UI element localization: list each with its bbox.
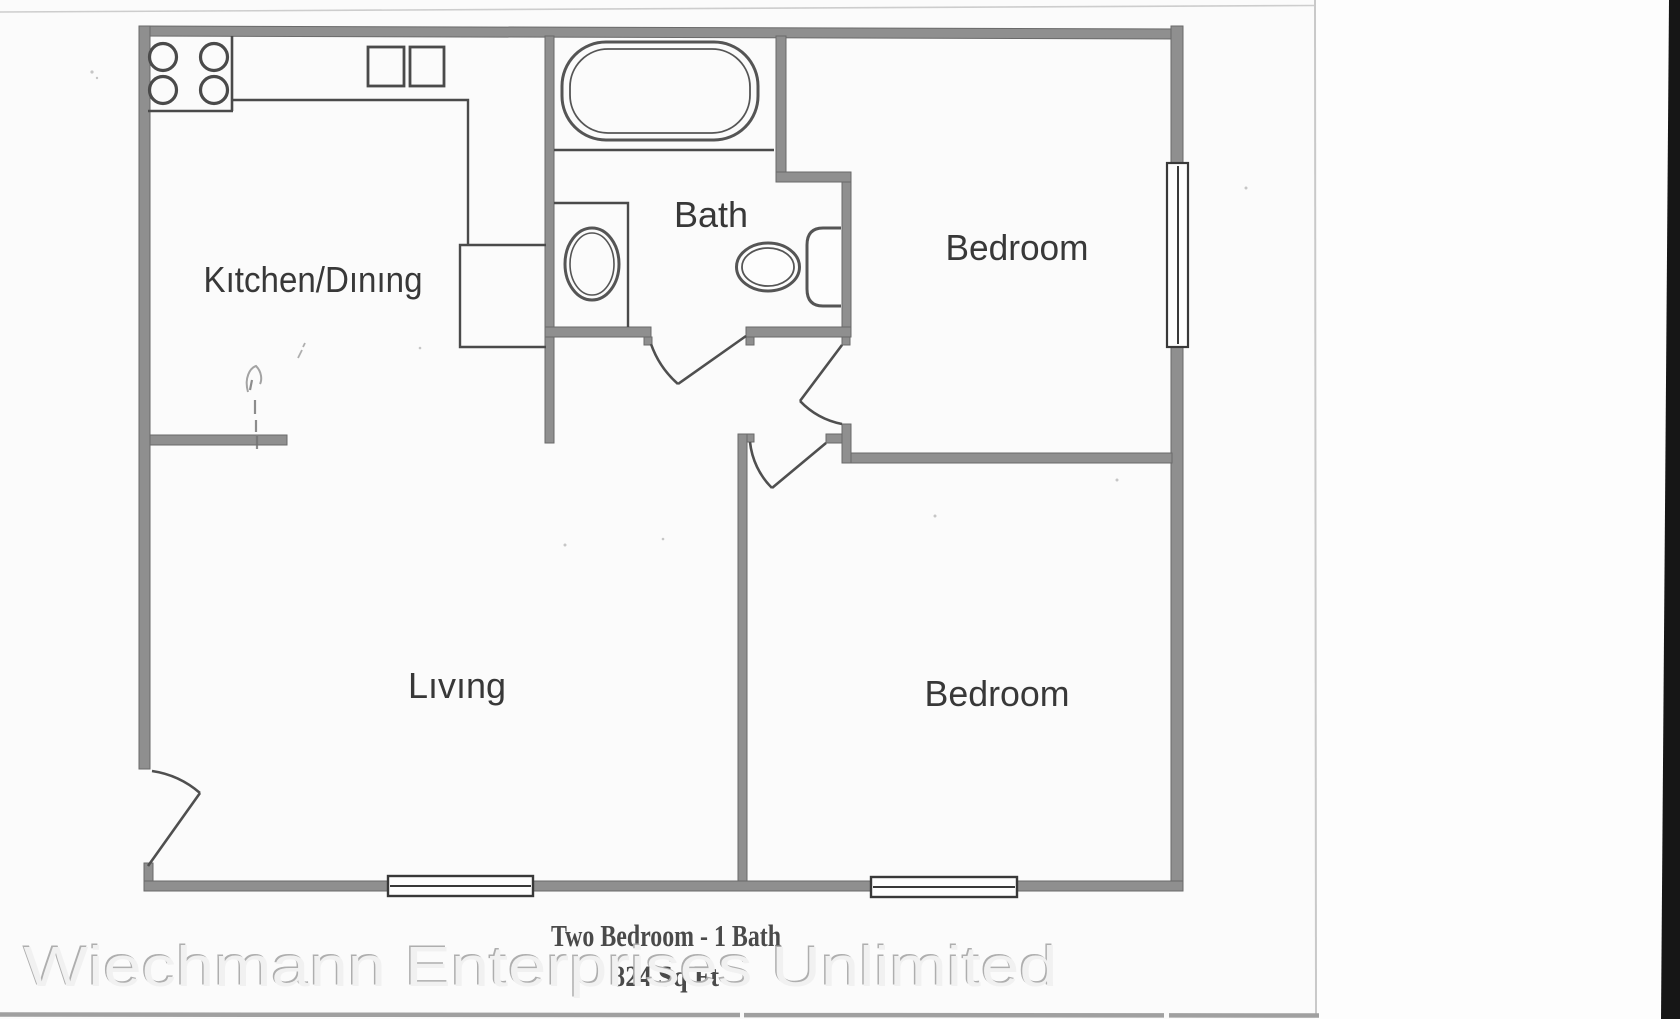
svg-text:Lıvıng: Lıvıng xyxy=(408,665,506,706)
svg-text:Wiechmann Enterprises Unlimite: Wiechmann Enterprises Unlimited xyxy=(24,935,1058,998)
svg-text:Bedroom: Bedroom xyxy=(925,673,1070,714)
svg-text:Bath: Bath xyxy=(674,194,748,235)
svg-text:Kıtchen/Dınıng: Kıtchen/Dınıng xyxy=(204,259,423,300)
svg-text:Bedroom: Bedroom xyxy=(946,227,1089,268)
